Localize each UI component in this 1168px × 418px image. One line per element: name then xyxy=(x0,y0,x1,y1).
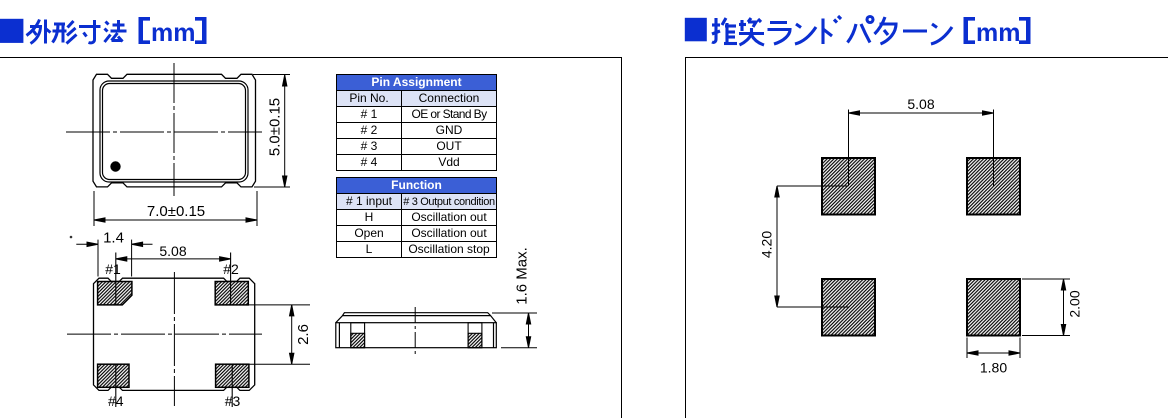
svg-text:4.20: 4.20 xyxy=(759,231,775,258)
svg-text:5.0±0.15: 5.0±0.15 xyxy=(267,98,284,156)
svg-text:7.0±0.15: 7.0±0.15 xyxy=(147,203,205,220)
svg-text:1.80: 1.80 xyxy=(980,360,1007,376)
svg-text:5.08: 5.08 xyxy=(159,243,186,259)
svg-text:2.00: 2.00 xyxy=(1067,290,1083,317)
svg-text:#2: #2 xyxy=(223,261,239,277)
svg-text:#4: #4 xyxy=(108,393,124,409)
svg-text:1.6 Max.: 1.6 Max. xyxy=(514,247,531,305)
svg-text:#1: #1 xyxy=(105,261,121,277)
svg-text:5.08: 5.08 xyxy=(907,96,934,112)
svg-text:#3: #3 xyxy=(225,393,241,409)
svg-text:1.4: 1.4 xyxy=(103,230,124,247)
svg-text:2.6: 2.6 xyxy=(295,324,312,345)
